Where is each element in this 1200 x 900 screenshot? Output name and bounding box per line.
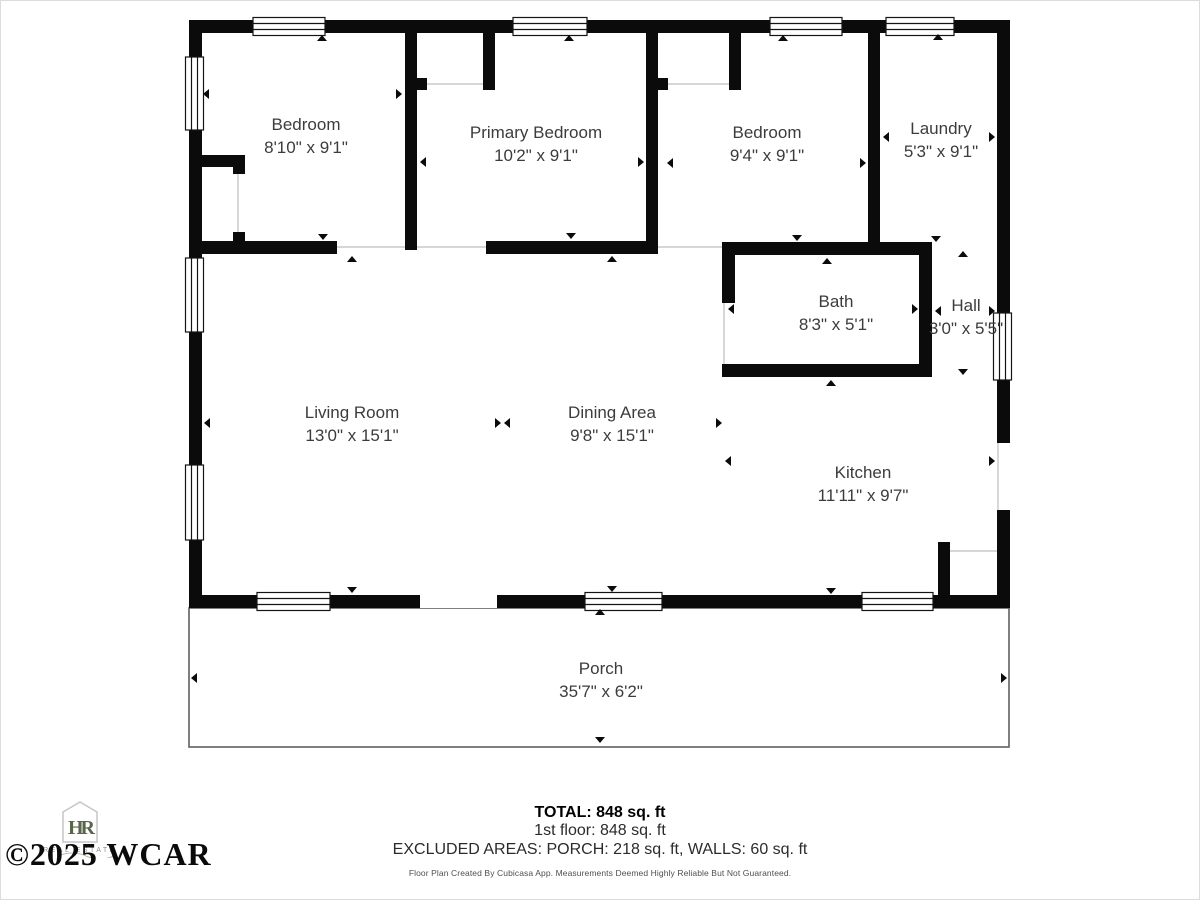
copyright-text: ©2025 WCAR <box>5 836 212 873</box>
room-label-dining-area: Dining Area 9'8" x 15'1" <box>568 401 656 447</box>
room-label-laundry: Laundry 5'3" x 9'1" <box>904 117 978 163</box>
room-label-bedroom-1: Bedroom 8'10" x 9'1" <box>264 113 348 159</box>
watermark: HR REAL ESTATE ©2025 WCAR <box>0 780 240 900</box>
room-label-porch: Porch 35'7" x 6'2" <box>559 657 643 703</box>
room-label-bedroom-2: Bedroom 9'4" x 9'1" <box>730 121 804 167</box>
room-dims: 9'8" x 15'1" <box>570 424 654 447</box>
room-name: Hall <box>951 294 980 317</box>
room-label-hall: Hall 3'0" x 5'5" <box>929 294 1003 340</box>
first-floor-area-text: 1st floor: 848 sq. ft <box>393 822 808 841</box>
room-dims: 10'2" x 9'1" <box>494 144 578 167</box>
room-dims: 11'11" x 9'7" <box>818 484 909 507</box>
disclaimer-text: Floor Plan Created By Cubicasa App. Meas… <box>393 868 808 878</box>
wall-openings <box>420 443 1010 608</box>
room-dims: 8'3" x 5'1" <box>799 313 873 336</box>
room-dims: 5'3" x 9'1" <box>904 140 978 163</box>
room-label-living-room: Living Room 13'0" x 15'1" <box>305 401 400 447</box>
floor-plan-page: Bedroom 8'10" x 9'1" Primary Bedroom 10'… <box>0 0 1200 900</box>
room-name: Living Room <box>305 401 400 424</box>
room-name: Bedroom <box>272 113 341 136</box>
room-name: Porch <box>579 657 623 680</box>
area-summary: TOTAL: 848 sq. ft 1st floor: 848 sq. ft … <box>393 804 808 878</box>
room-name: Primary Bedroom <box>470 121 602 144</box>
room-name: Kitchen <box>835 461 892 484</box>
room-dims: 8'10" x 9'1" <box>264 136 348 159</box>
total-area-text: TOTAL: 848 sq. ft <box>393 804 808 822</box>
room-dims: 9'4" x 9'1" <box>730 144 804 167</box>
room-name: Bath <box>819 290 854 313</box>
walls <box>189 20 1010 608</box>
room-label-kitchen: Kitchen 11'11" x 9'7" <box>818 461 909 507</box>
windows <box>186 18 1012 611</box>
room-label-primary-bedroom: Primary Bedroom 10'2" x 9'1" <box>470 121 602 167</box>
room-name: Dining Area <box>568 401 656 424</box>
room-dims: 35'7" x 6'2" <box>559 680 643 703</box>
room-dims: 13'0" x 15'1" <box>305 424 398 447</box>
room-name: Bedroom <box>733 121 802 144</box>
room-label-bath: Bath 8'3" x 5'1" <box>799 290 873 336</box>
room-name: Laundry <box>910 117 971 140</box>
room-dims: 3'0" x 5'5" <box>929 317 1003 340</box>
excluded-areas-text: EXCLUDED AREAS: PORCH: 218 sq. ft, WALLS… <box>393 841 808 860</box>
